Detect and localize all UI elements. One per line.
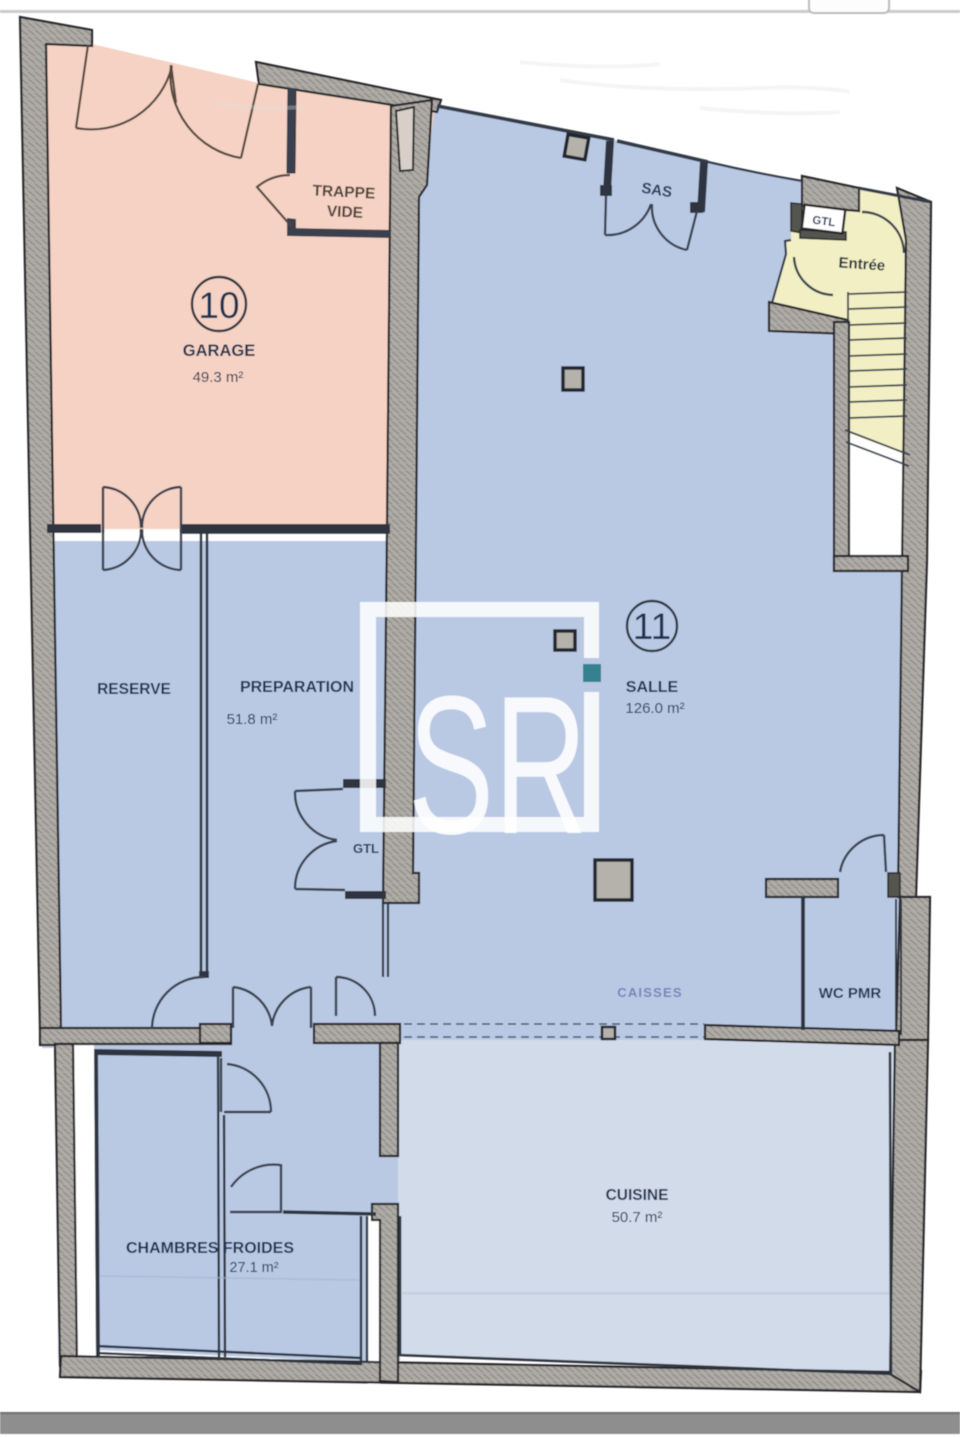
svg-text:PREPARATION: PREPARATION xyxy=(240,679,354,696)
svg-text:VIDE: VIDE xyxy=(326,203,363,222)
svg-text:CHAMBRES FROIDES: CHAMBRES FROIDES xyxy=(126,1240,294,1257)
svg-text:11: 11 xyxy=(633,606,671,647)
svg-text:50.7 m²: 50.7 m² xyxy=(612,1209,663,1226)
svg-text:GARAGE: GARAGE xyxy=(183,342,255,360)
svg-text:CAISSES: CAISSES xyxy=(617,985,682,1000)
svg-text:RESERVE: RESERVE xyxy=(97,681,171,698)
svg-text:SR: SR xyxy=(408,656,587,876)
svg-text:27.1 m²: 27.1 m² xyxy=(229,1260,278,1276)
svg-text:SALLE: SALLE xyxy=(626,679,679,696)
svg-text:49.3 m²: 49.3 m² xyxy=(193,369,244,386)
svg-text:126.0 m²: 126.0 m² xyxy=(625,700,684,717)
svg-text:CUISINE: CUISINE xyxy=(606,1187,669,1204)
svg-text:WC PMR: WC PMR xyxy=(819,985,882,1002)
svg-text:Entrée: Entrée xyxy=(838,254,886,274)
svg-text:10: 10 xyxy=(198,285,239,326)
svg-text:GTL: GTL xyxy=(353,841,379,856)
svg-text:TRAPPE: TRAPPE xyxy=(312,182,376,202)
svg-text:51.8 m²: 51.8 m² xyxy=(227,711,278,728)
